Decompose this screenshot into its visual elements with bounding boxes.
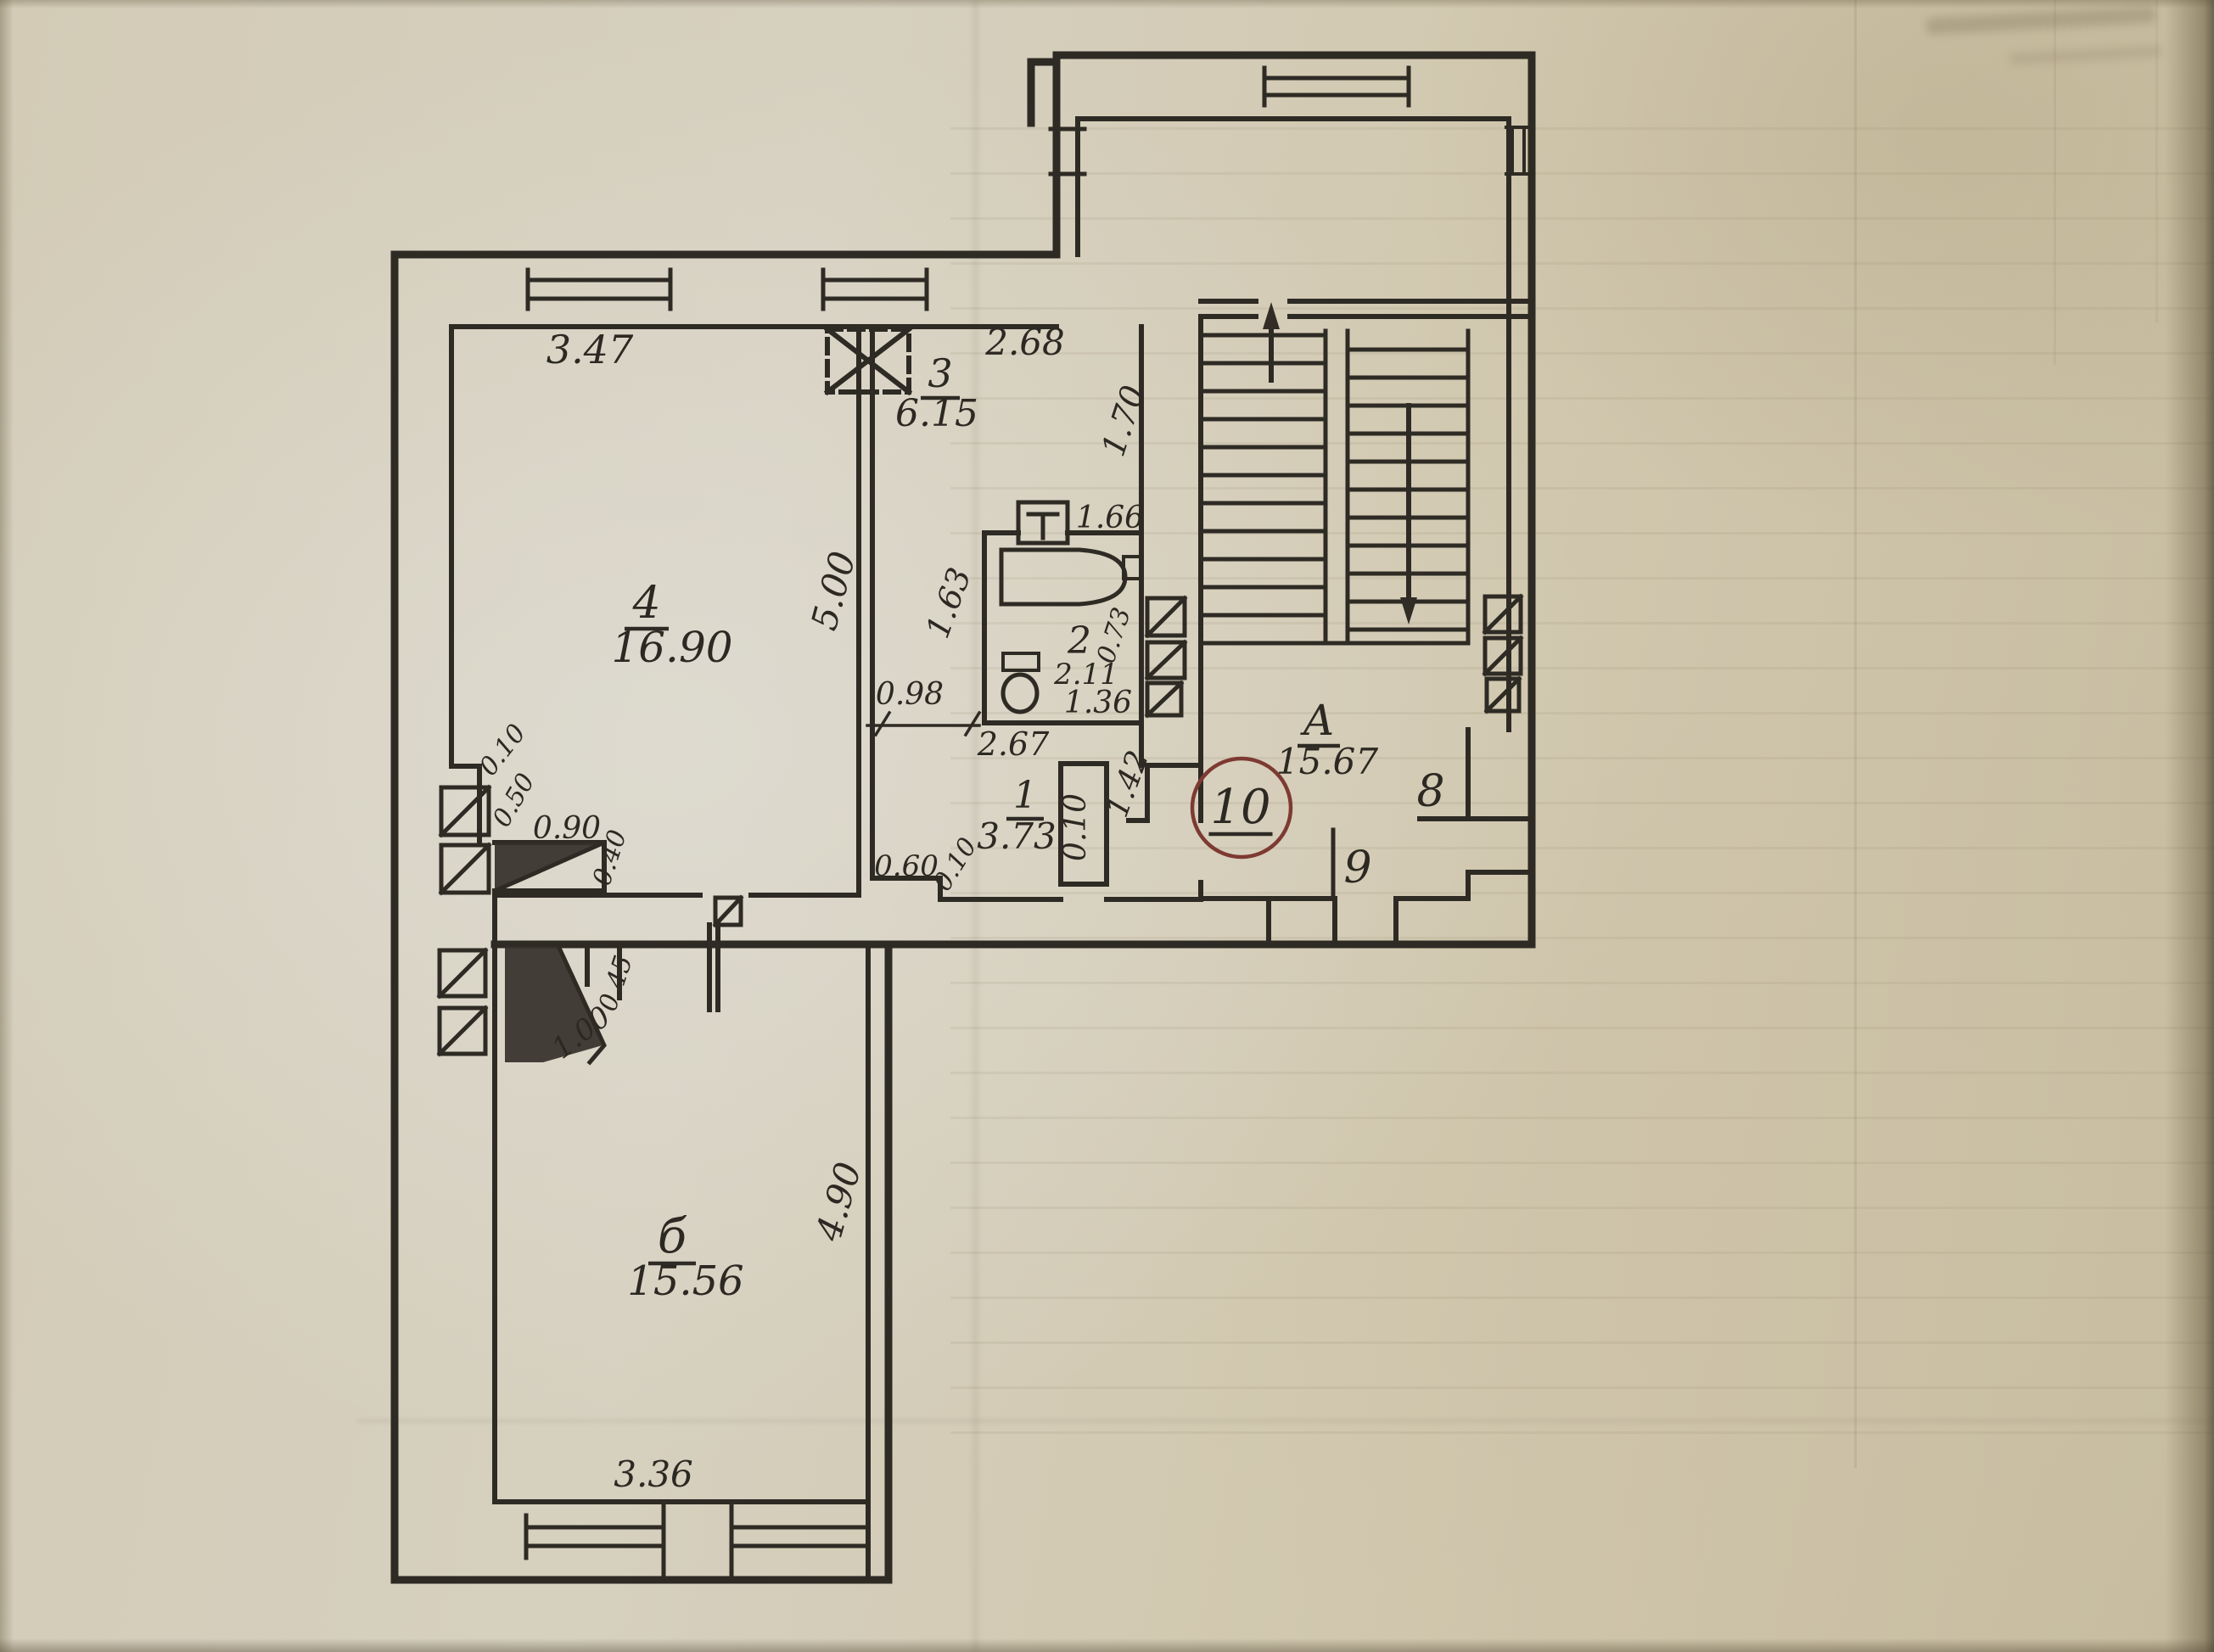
dimension-label: 3.36 — [614, 1453, 693, 1495]
room-or-door-label: 4 — [631, 578, 660, 629]
plan-labels-layer: 3.472.6836.151.701.66416.905.001.6322.11… — [474, 322, 1444, 1495]
floor-plan-drawing: 3.472.6836.151.701.66416.905.001.6322.11… — [0, 0, 2214, 1652]
dimension-label: 3.47 — [546, 327, 634, 372]
dimension-label: 0.10 — [1058, 793, 1093, 861]
dimension-line — [867, 713, 979, 735]
dimension-label: 6.15 — [895, 392, 978, 435]
dimension-label: 1.66 — [1076, 501, 1144, 535]
dimension-label: 1.63 — [919, 563, 978, 643]
dimension-label: 15.67 — [1276, 741, 1379, 782]
scanned-floor-plan-page: 3.472.6836.151.701.66416.905.001.6322.11… — [0, 0, 2214, 1652]
dimension-label: 16.90 — [611, 623, 732, 672]
room-or-door-label: б — [658, 1209, 687, 1264]
staircase — [1201, 331, 1468, 643]
toilet — [1003, 653, 1039, 712]
dimension-label: 9 — [1343, 843, 1371, 893]
room-or-door-label: А — [1300, 696, 1335, 745]
dimension-label: 4.90 — [807, 1157, 869, 1246]
page-edge-shadow — [0, 0, 2214, 8]
dimension-label: 0.90 — [533, 811, 601, 846]
bathtub — [1001, 550, 1141, 604]
page-edge-shadow — [2165, 0, 2214, 1652]
dimension-label: 0.10 — [474, 719, 532, 781]
boiler-tank — [1018, 502, 1068, 543]
dimension-label: 15.56 — [627, 1257, 743, 1305]
stair-down-arrow — [1400, 406, 1417, 624]
room-or-door-label: 10 — [1210, 780, 1270, 835]
dimension-label: 0.98 — [876, 677, 944, 712]
page-edge-shadow — [0, 1638, 2214, 1652]
stair-up-arrow — [1263, 302, 1280, 380]
page-edge-shadow — [0, 0, 14, 1652]
room-or-door-label: 3 — [928, 350, 952, 396]
dimension-label: 0.73 — [1091, 604, 1137, 667]
dimension-label: 2.67 — [977, 725, 1050, 763]
dimension-label: 8 — [1416, 766, 1444, 817]
room-or-door-label: 1 — [1013, 774, 1037, 817]
vent-shaft-crossed-box — [827, 329, 909, 392]
dimension-label: 5.00 — [803, 547, 864, 635]
dimension-label: 2.68 — [984, 322, 1065, 363]
dimension-label: 1.36 — [1064, 686, 1132, 720]
dimension-label: 3.73 — [977, 815, 1057, 857]
dimension-label: 2 — [1067, 619, 1091, 663]
